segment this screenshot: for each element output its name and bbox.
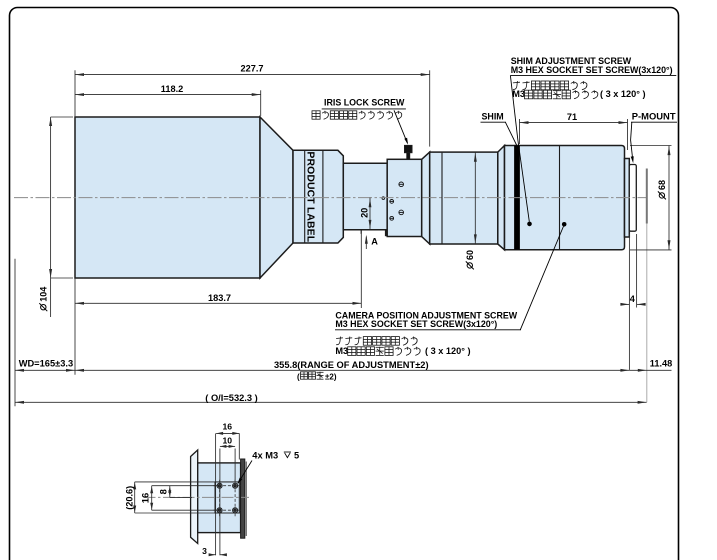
svg-text:355.8(RANGE OF ADJUSTMENT±2): 355.8(RANGE OF ADJUSTMENT±2)	[274, 360, 429, 370]
svg-text:IRIS LOCK SCREW: IRIS LOCK SCREW	[324, 97, 405, 107]
svg-text:104: 104	[39, 287, 49, 302]
svg-text:P-MOUNT: P-MOUNT	[632, 111, 676, 122]
svg-text:M3 HEX SOCKET SET SCREW(3x120°: M3 HEX SOCKET SET SCREW(3x120°)	[335, 319, 497, 329]
svg-text:71: 71	[567, 112, 577, 122]
svg-text:SHIM: SHIM	[482, 112, 504, 122]
svg-text:4x M3: 4x M3	[252, 451, 278, 461]
svg-text:10: 10	[223, 436, 233, 446]
svg-text:60: 60	[465, 250, 475, 260]
svg-text:4: 4	[630, 294, 636, 304]
svg-text:M3: M3	[512, 89, 525, 99]
svg-text:183.7: 183.7	[208, 293, 231, 303]
svg-text:WD=165±3.3: WD=165±3.3	[19, 359, 73, 369]
svg-text:M3: M3	[335, 346, 348, 356]
svg-text:±2): ±2)	[325, 372, 337, 381]
svg-text:8: 8	[158, 489, 169, 494]
svg-text:A: A	[371, 237, 378, 247]
svg-text:PRODUCT LABEL: PRODUCT LABEL	[304, 151, 315, 242]
svg-text:20: 20	[360, 208, 370, 218]
svg-text:16: 16	[139, 493, 150, 503]
svg-text:( 3 x 120° ): ( 3 x 120° )	[425, 346, 471, 356]
svg-text:11.48: 11.48	[650, 358, 672, 368]
svg-text:68: 68	[657, 180, 667, 190]
svg-text:( 3 x 120° ): ( 3 x 120° )	[600, 89, 646, 99]
svg-text:5: 5	[294, 451, 299, 461]
svg-text:118.2: 118.2	[161, 84, 183, 94]
svg-text:16: 16	[223, 422, 233, 432]
svg-text:( O/I=532.3 ): ( O/I=532.3 )	[205, 393, 257, 403]
svg-text:227.7: 227.7	[241, 63, 264, 73]
svg-text:(20.6): (20.6)	[124, 486, 134, 510]
svg-text:M3 HEX SOCKET SET SCREW(3x120°: M3 HEX SOCKET SET SCREW(3x120°)	[511, 65, 673, 75]
svg-text:3: 3	[202, 546, 207, 556]
svg-text:(: (	[297, 372, 300, 381]
